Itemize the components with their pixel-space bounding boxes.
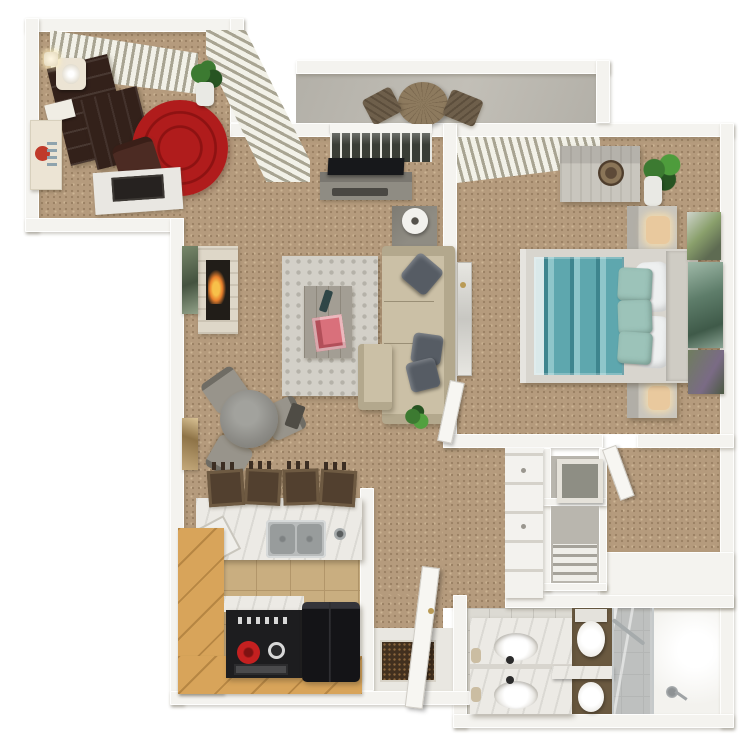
photo-collage-panel	[687, 212, 721, 260]
door-knob-icon	[428, 608, 434, 614]
black-faucet-icon	[506, 656, 514, 664]
stool-legs-icon	[212, 462, 234, 470]
bar-stool	[282, 468, 319, 505]
nightstand-bottom-lamp-icon	[648, 386, 670, 410]
den-monitor	[111, 174, 165, 202]
tv	[328, 158, 405, 175]
teal-accent-pillow-icon	[617, 267, 653, 302]
den-wall-art-bars-icon	[47, 138, 57, 166]
floor-plant-icon	[400, 402, 432, 434]
teal-accent-pillow-icon	[617, 331, 653, 365]
photo-collage-panel	[688, 262, 723, 348]
nightstand-top-lamp-icon	[646, 216, 670, 244]
patio-table	[398, 82, 448, 126]
towel-roll-icon	[471, 648, 481, 663]
bar-stool	[207, 469, 245, 507]
oval-fixture	[578, 682, 604, 712]
white-burner-icon	[268, 642, 285, 659]
den-wall-sconce-icon	[44, 52, 58, 66]
wall-patio-right	[596, 60, 610, 123]
sliding-door-valance	[330, 124, 432, 133]
tan-wall-art	[182, 418, 198, 470]
toilet-bowl	[577, 621, 605, 657]
storage-box-icon	[557, 459, 603, 503]
teal-accent-pillow-icon	[617, 299, 652, 334]
kitchen-faucet-icon	[334, 528, 346, 540]
mirror-knob-icon	[460, 282, 466, 288]
wall-kitchen-entry-divider	[360, 488, 374, 691]
black-faucet-icon	[506, 676, 514, 684]
bed-duvet-fold	[534, 257, 544, 375]
hallway-floor	[443, 448, 505, 608]
wall-entry-bath-divider	[453, 595, 467, 728]
bed-duvet-teal	[534, 257, 624, 375]
soundbar-icon	[332, 188, 388, 196]
refrigerator	[302, 602, 360, 682]
sofa-chaise	[358, 344, 392, 410]
leaning-mirror	[457, 262, 472, 376]
stool-legs-icon	[287, 461, 309, 469]
wall-top-living-bedroom	[230, 123, 734, 137]
sink-basin-icon	[270, 524, 295, 554]
pink-magazine-icon	[312, 314, 346, 352]
marble-half-wall	[552, 666, 614, 679]
linen-closet-knob-icon	[521, 524, 526, 529]
wall-bath-bottom	[453, 714, 734, 728]
photo-collage-panel	[688, 350, 724, 394]
den-plant-pot	[196, 82, 214, 106]
fireplace-flame-icon	[208, 270, 226, 304]
stove-display-panel-icon	[234, 664, 288, 675]
dresser-hat-box-icon	[598, 160, 624, 186]
stove-control-dashes-icon	[238, 617, 290, 624]
floor-plan	[0, 0, 750, 750]
wall-bedroom-bottom-a	[443, 434, 603, 448]
bedroom-plant-pot	[644, 176, 662, 206]
cylinder-lamp-icon	[402, 208, 428, 234]
wall-den-bottom	[25, 218, 184, 232]
red-burner-icon	[237, 641, 260, 664]
oval-sink-bottom	[494, 681, 538, 709]
bar-stool	[319, 469, 357, 507]
towel-roll-icon	[471, 687, 481, 702]
wall-cubby-bottom	[543, 583, 607, 591]
wall-den-top	[25, 18, 244, 32]
table-lamp-den-shade-icon	[62, 64, 80, 84]
dining-table	[220, 390, 278, 448]
cubby-shelf-slats-icon	[553, 544, 597, 581]
headboard	[666, 251, 688, 381]
linen-closet-knob-icon	[521, 468, 526, 473]
wall-patio-top	[296, 60, 610, 74]
green-wall-art	[182, 246, 198, 314]
sink-basin-icon	[297, 524, 322, 554]
sofa-seat-line	[384, 301, 434, 302]
bar-stool	[244, 468, 282, 506]
stool-legs-icon	[324, 462, 346, 470]
walkin-closet-floor	[607, 448, 720, 558]
oval-sink-top	[494, 633, 538, 661]
wall-cubby-left	[543, 448, 551, 591]
wall-right	[720, 123, 734, 728]
wall-bedroom-bottom-b	[637, 434, 734, 448]
stool-legs-icon	[249, 461, 271, 469]
